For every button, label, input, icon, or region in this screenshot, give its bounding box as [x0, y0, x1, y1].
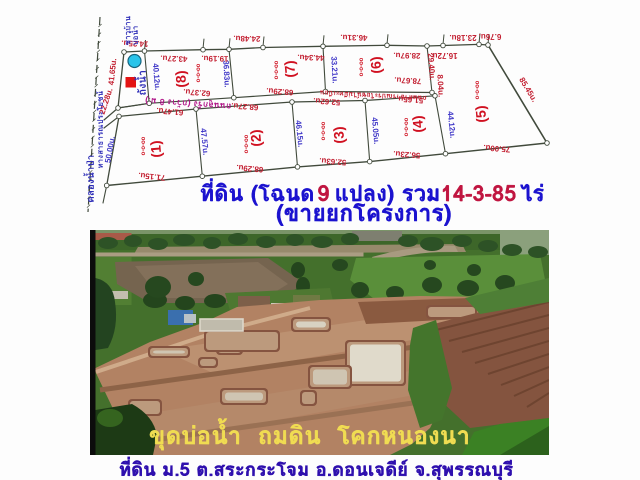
svg-text:29.40u.: 29.40u. [426, 53, 437, 81]
svg-text:o-o-oo: o-o-oo [359, 57, 365, 76]
svg-text:(3): (3) [330, 126, 347, 144]
svg-text:62.37u.: 62.37u. [183, 87, 211, 98]
svg-text:46.31u.: 46.31u. [340, 33, 367, 42]
svg-text:8.04u.: 8.04u. [435, 74, 445, 97]
svg-text:36.83u.: 36.83u. [221, 60, 231, 88]
svg-text:23.18u.: 23.18u. [449, 33, 476, 42]
svg-text:28.97u.: 28.97u. [393, 51, 420, 60]
svg-text:43.27u.: 43.27u. [160, 54, 187, 64]
svg-text:(8): (8) [172, 70, 189, 88]
svg-text:(7): (7) [281, 60, 298, 78]
svg-text:52.63u.: 52.63u. [319, 156, 347, 167]
svg-text:56.23u.: 56.23u. [393, 149, 421, 160]
svg-text:78.67u.: 78.67u. [394, 75, 422, 85]
svg-text:52.62u.: 52.62u. [313, 96, 341, 107]
svg-text:o-o-oo: o-o-oo [141, 136, 147, 155]
svg-text:(6): (6) [367, 56, 384, 74]
svg-text:6.76u.: 6.76u. [479, 32, 502, 41]
svg-text:24.48u.: 24.48u. [233, 34, 260, 43]
svg-text:(5): (5) [472, 105, 489, 123]
svg-text:44.34u.: 44.34u. [297, 53, 324, 62]
svg-text:o-o-oo: o-o-oo [244, 134, 250, 153]
svg-text:o-o-oo: o-o-oo [404, 117, 410, 136]
svg-text:33.21u.: 33.21u. [329, 56, 339, 84]
svg-text:o-o-oo: o-o-oo [321, 121, 327, 140]
svg-text:o-o-oo: o-o-oo [196, 63, 202, 82]
svg-text:(4): (4) [409, 115, 426, 133]
svg-text:o-o-oo: o-o-oo [475, 80, 481, 99]
svg-text:(1): (1) [147, 140, 164, 158]
svg-text:68.29u.: 68.29u. [266, 86, 294, 97]
svg-text:o-o-oo: o-o-oo [274, 60, 280, 79]
svg-text:68.27u.: 68.27u. [231, 101, 259, 112]
